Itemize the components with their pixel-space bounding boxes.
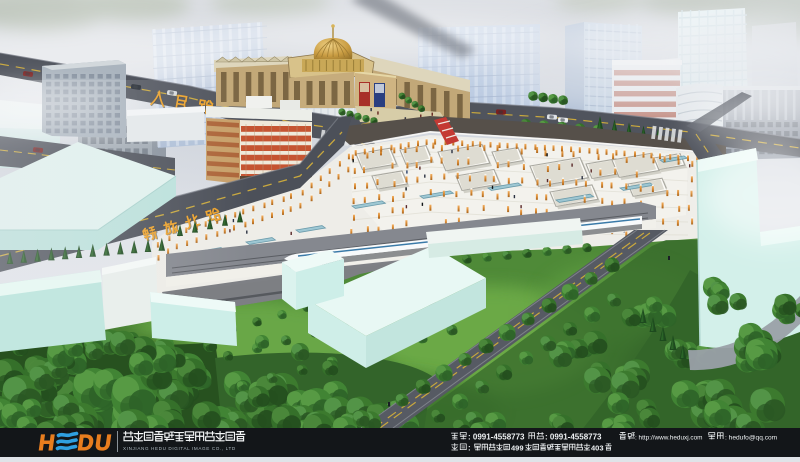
svg-text::: : <box>468 444 471 453</box>
svg-text:403: 403 <box>591 444 604 453</box>
svg-text:DU: DU <box>76 430 114 455</box>
svg-text:499: 499 <box>511 444 524 453</box>
svg-text:: hedufo@qq.com: : hedufo@qq.com <box>725 435 778 442</box>
svg-text:XINJIANG HEDU DIGITAL IMAGE CO: XINJIANG HEDU DIGITAL IMAGE CO., LTD <box>123 446 236 451</box>
svg-text:: 0991-4558773: : 0991-4558773 <box>545 433 602 442</box>
svg-text:: http://www.heduxj.com: : http://www.heduxj.com <box>635 435 703 442</box>
svg-text:: 0991-4558773: : 0991-4558773 <box>468 433 525 442</box>
